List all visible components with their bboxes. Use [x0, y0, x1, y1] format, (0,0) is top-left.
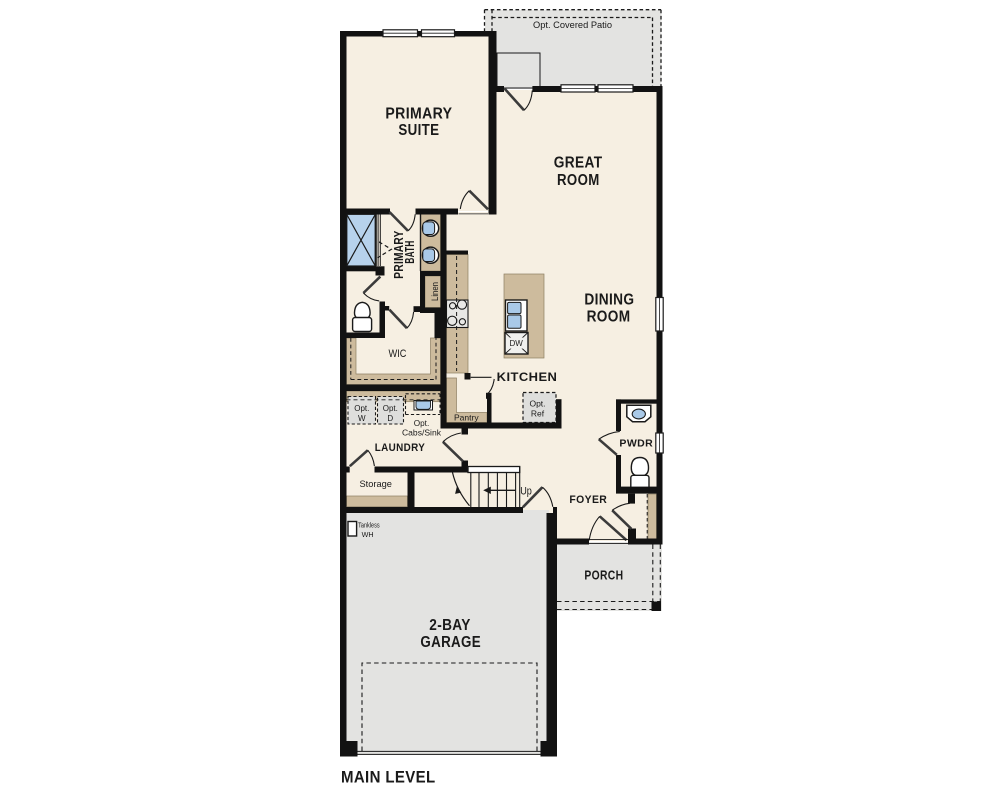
svg-text:FOYER: FOYER: [569, 494, 607, 506]
svg-text:Opt.: Opt.: [414, 419, 429, 428]
svg-text:Opt.: Opt.: [383, 404, 398, 413]
svg-text:Opt. Covered Patio: Opt. Covered Patio: [533, 20, 612, 30]
svg-text:2-BAY: 2-BAY: [429, 617, 470, 634]
svg-text:GREAT: GREAT: [554, 154, 603, 171]
svg-text:Linen: Linen: [430, 282, 440, 301]
svg-text:Pantry: Pantry: [454, 412, 479, 422]
svg-text:WH: WH: [362, 530, 374, 539]
svg-text:DW: DW: [510, 339, 524, 348]
svg-text:GARAGE: GARAGE: [420, 634, 481, 651]
svg-text:WIC: WIC: [389, 348, 407, 360]
svg-text:ROOM: ROOM: [557, 172, 600, 189]
svg-text:DINING: DINING: [584, 291, 634, 308]
svg-text:PORCH: PORCH: [584, 568, 623, 582]
svg-text:Tankless: Tankless: [358, 520, 380, 529]
svg-text:Cabs/Sink: Cabs/Sink: [402, 428, 442, 437]
svg-text:PRIMARY: PRIMARY: [385, 105, 452, 122]
svg-text:LAUNDRY: LAUNDRY: [375, 442, 426, 454]
svg-text:KITCHEN: KITCHEN: [497, 370, 558, 384]
svg-text:Up: Up: [520, 486, 532, 498]
svg-text:MAIN LEVEL: MAIN LEVEL: [341, 769, 436, 787]
svg-text:Ref: Ref: [531, 408, 545, 418]
svg-text:Opt.: Opt.: [529, 399, 545, 409]
svg-text:SUITE: SUITE: [398, 122, 439, 139]
svg-text:Opt.: Opt.: [354, 404, 369, 413]
svg-text:BATH: BATH: [403, 240, 417, 263]
svg-text:Storage: Storage: [359, 479, 392, 490]
svg-text:D: D: [387, 414, 393, 423]
svg-text:PWDR: PWDR: [619, 438, 653, 450]
svg-text:W: W: [358, 414, 366, 423]
svg-text:ROOM: ROOM: [587, 308, 631, 325]
